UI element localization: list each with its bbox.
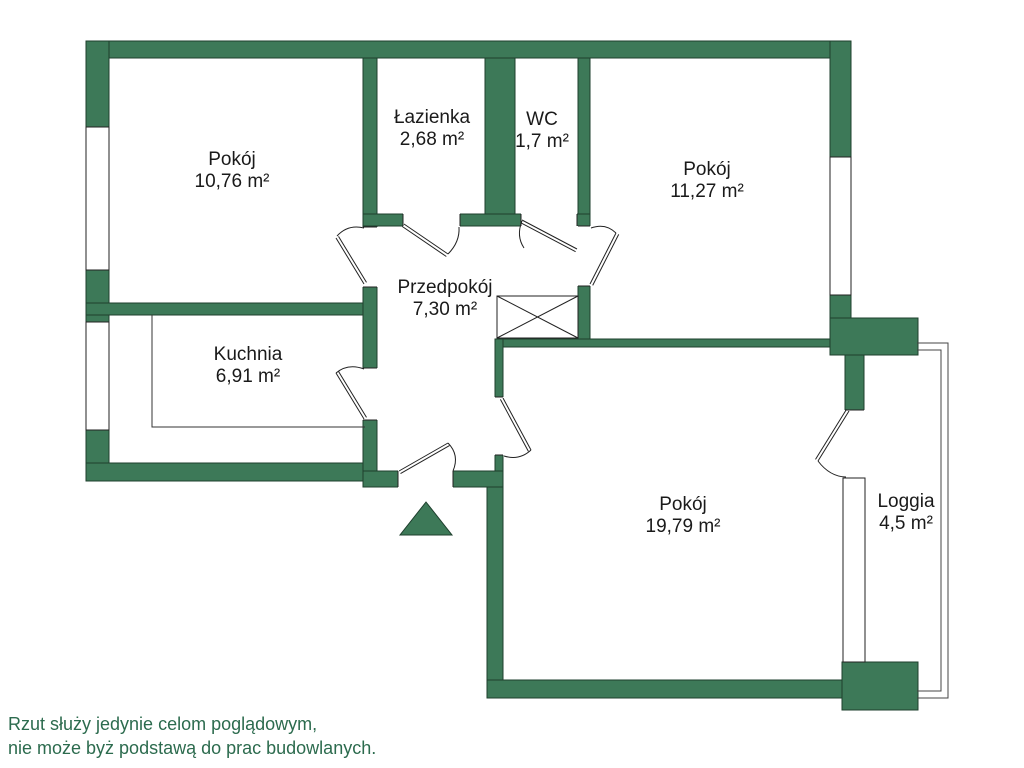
window-kitchen xyxy=(86,322,109,430)
door-room2 xyxy=(590,226,619,285)
wall-bigroom-bottom xyxy=(487,680,842,698)
wall-loggia-top-block xyxy=(830,318,918,355)
door-room1 xyxy=(336,227,367,284)
door-entrance xyxy=(399,443,455,474)
room-area: 7,30 m² xyxy=(397,299,492,321)
door-bathroom xyxy=(402,224,459,257)
opening-kitchen-door xyxy=(362,368,378,420)
door-kitchen xyxy=(336,367,367,419)
wall-loggia-bottom-block xyxy=(842,662,918,710)
disclaimer-line-2: nie może byż podstawą do prac budowlanyc… xyxy=(8,736,376,760)
opening-bathroom-door xyxy=(403,213,460,227)
room-area: 6,91 m² xyxy=(214,366,283,388)
opening-entrance-door xyxy=(398,470,453,488)
windows-group xyxy=(86,127,865,662)
room-area: 19,79 m² xyxy=(646,516,721,538)
disclaimer-text: Rzut służy jedynie celom poglądowym, nie… xyxy=(8,712,376,760)
room-label-wc: WC 1,7 m² xyxy=(515,109,569,153)
opening-balcony-door xyxy=(844,410,865,478)
walls-group xyxy=(86,41,918,710)
wall-left-upper xyxy=(86,41,109,127)
opening-room2-door xyxy=(577,226,591,286)
disclaimer-line-1: Rzut służy jedynie celom poglądowym, xyxy=(8,712,376,736)
room-name: WC xyxy=(515,109,569,131)
room-label-przedpokoj: Przedpokój 7,30 m² xyxy=(397,277,492,321)
room-label-lazienka: Łazienka 2,68 m² xyxy=(394,107,470,151)
room-area: 11,27 m² xyxy=(670,181,744,203)
room-name: Loggia xyxy=(877,491,934,513)
door-bigroom xyxy=(500,398,531,457)
wall-room1-kitchen-divider xyxy=(86,303,377,315)
floorplan-page: Pokój 10,76 m² Łazienka 2,68 m² WC 1,7 m… xyxy=(0,0,1024,768)
room-name: Pokój xyxy=(646,494,721,516)
opening-wc-door xyxy=(521,213,577,227)
shaft-crossed-box xyxy=(497,296,578,338)
opening-cut-lines xyxy=(363,214,864,487)
room-name: Pokój xyxy=(195,149,270,171)
wall-kitchen-bottom xyxy=(86,463,377,481)
room-area: 10,76 m² xyxy=(195,171,270,193)
room-area: 4,5 m² xyxy=(877,513,934,535)
room-label-loggia: Loggia 4,5 m² xyxy=(877,491,934,535)
room-name: Pokój xyxy=(670,159,744,181)
door-openings-group xyxy=(362,213,865,488)
room-area: 1,7 m² xyxy=(515,131,569,153)
entrance-arrow-icon xyxy=(400,502,452,535)
window-balcony xyxy=(843,478,865,662)
room-name: Kuchnia xyxy=(214,344,283,366)
wall-right-upper xyxy=(830,41,851,157)
room-label-pokoj-3: Pokój 19,79 m² xyxy=(646,494,721,538)
window-room1 xyxy=(86,127,109,270)
wall-lazienka-wc-divider xyxy=(485,58,515,215)
wall-bigroom-left-lower xyxy=(487,471,503,698)
door-balcony xyxy=(816,409,850,477)
room-area: 2,68 m² xyxy=(394,129,470,151)
floorplan-drawing xyxy=(0,0,1024,768)
wall-right-mid xyxy=(830,295,851,318)
room-name: Przedpokój xyxy=(397,277,492,299)
room-label-kuchnia: Kuchnia 6,91 m² xyxy=(214,344,283,388)
opening-bigroom-door xyxy=(494,397,504,455)
wall-wc-right xyxy=(578,58,590,347)
room-label-pokoj-1: Pokój 10,76 m² xyxy=(195,149,270,193)
doors-group xyxy=(336,220,849,477)
room-label-pokoj-2: Pokój 11,27 m² xyxy=(670,159,744,203)
wall-bigroom-right xyxy=(845,355,864,410)
wall-top-outer xyxy=(86,41,851,58)
window-room2 xyxy=(830,157,851,295)
room-name: Łazienka xyxy=(394,107,470,129)
wall-bigroom-top xyxy=(495,339,845,347)
